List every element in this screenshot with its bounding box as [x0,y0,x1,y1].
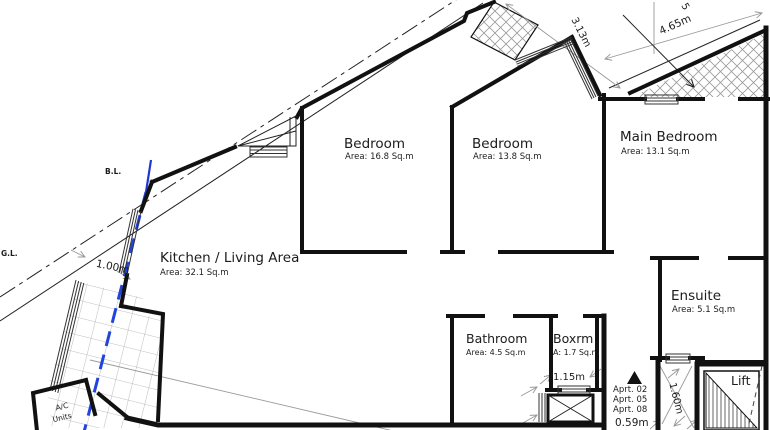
floor-plan-canvas: Kitchen / Living Area Area: 32.1 Sq.m Be… [0,0,770,430]
room-area-kitchen: Area: 32.1 Sq.m [160,268,229,278]
dim-4-65m: 4.65m [657,13,693,38]
room-label-bedroom1: Bedroom [344,136,405,152]
room-area-boxrm: A: 1.7 Sq.m [553,348,600,357]
dim-tick-shaft-a [521,387,537,396]
duct-shaft-x-box [548,395,593,422]
floor-plan-page: Kitchen / Living Area Area: 32.1 Sq.m Be… [0,0,770,430]
room-area-bedroom1: Area: 16.8 Sq.m [345,152,414,162]
apartment-list-2: Aprt. 05 [613,395,647,405]
room-label-bathroom: Bathroom [466,331,527,346]
wall-kitchen-top-diagonal [152,147,235,182]
ventilation-shaft-hatched [471,2,538,60]
apartment-list-3: Aprt. 08 [613,405,647,415]
vent-fan-symbol [238,116,296,146]
dim-tick-1-60-a [668,369,679,378]
room-area-main-bedroom: Area: 13.1 Sq.m [621,147,690,157]
room-label-kitchen: Kitchen / Living Area [160,250,299,266]
terrace-crosshatch [636,33,766,97]
room-label-bedroom2: Bedroom [472,136,533,152]
dim-0-59m: 0.59m [615,417,649,429]
room-label-boxrm: Boxrm [553,331,593,346]
wall-bottom [127,418,604,425]
room-label-lift: Lift [731,373,751,388]
room-area-bedroom2: Area: 13.8 Sq.m [473,152,542,162]
apartment-list-1: Aprt. 02 [613,385,647,395]
room-label-ensuite: Ensuite [671,288,721,304]
shaft-crosshatch [471,2,538,60]
shaft-side-window [539,393,545,422]
apartment-marker-triangle [627,371,642,384]
room-area-ensuite: Area: 5.1 Sq.m [672,305,735,315]
room-label-main-bedroom: Main Bedroom [620,129,718,145]
dim-tick-1-00-a [71,250,85,257]
kitchen-divider-window [250,147,287,157]
dim-1-00m: 1.00m [95,258,130,277]
boundary-line-label: B.L. [105,167,121,176]
dim-1-15m: 1.15m [553,372,585,383]
ground-line-label: G.L. [1,249,18,258]
room-area-bathroom: Area: 4.5 Sq.m [466,348,526,357]
top-right-terrace [609,20,766,97]
dim-tick-1-60-b [674,416,685,426]
partial-dimension-text: 5 [678,1,691,12]
